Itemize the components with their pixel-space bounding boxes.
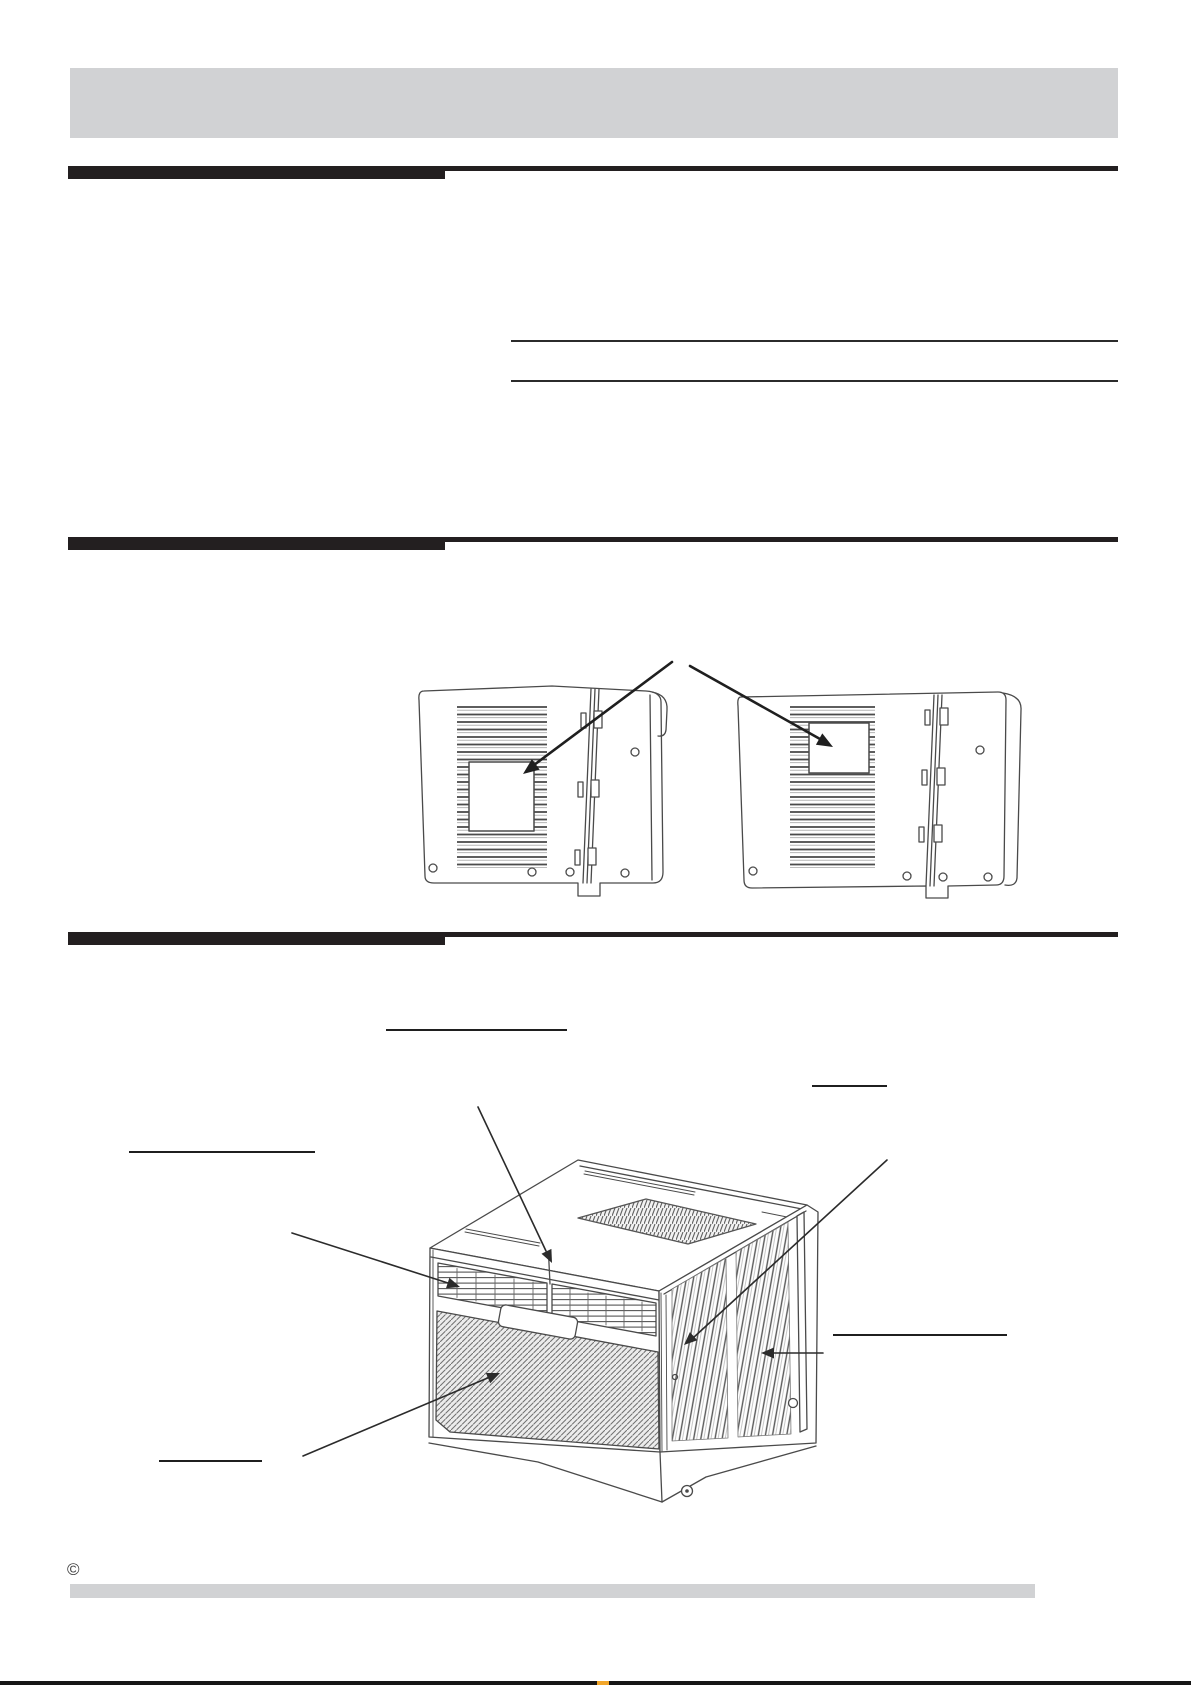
footer-gray-band <box>70 1584 1035 1598</box>
section-1-header-rule <box>445 166 1118 171</box>
binding-mark <box>597 1681 609 1685</box>
label-underline-intake <box>159 1460 262 1462</box>
section-2-header-bar <box>68 537 445 550</box>
fig-back-panels <box>270 630 1060 920</box>
top-gray-band <box>70 68 1118 138</box>
section-1-header-bar <box>68 166 445 179</box>
fig-ac-unit <box>250 1080 930 1510</box>
ac-side-louver-band-1 <box>672 1258 728 1441</box>
ac-drain-port <box>789 1399 798 1408</box>
ac-unit-drawing <box>429 1160 818 1502</box>
section-3-header-rule <box>445 932 1118 937</box>
right-panel-opening <box>809 723 869 773</box>
blank-field-line-1 <box>511 340 1118 342</box>
copyright-symbol: © <box>67 1560 91 1580</box>
page-bottom-edge <box>0 1681 1191 1685</box>
section-2-header-rule <box>445 537 1118 542</box>
blank-field-line-2 <box>511 380 1118 382</box>
left-back-panel <box>419 686 667 896</box>
section-3-header-bar <box>68 932 445 945</box>
manual-page: © <box>0 0 1191 1685</box>
label-underline-tools <box>386 1029 567 1031</box>
ac-side-louver-band-2 <box>736 1222 791 1437</box>
callout-left-vent <box>292 1233 448 1283</box>
right-back-panel <box>738 692 1021 898</box>
ac-base <box>429 1443 662 1502</box>
